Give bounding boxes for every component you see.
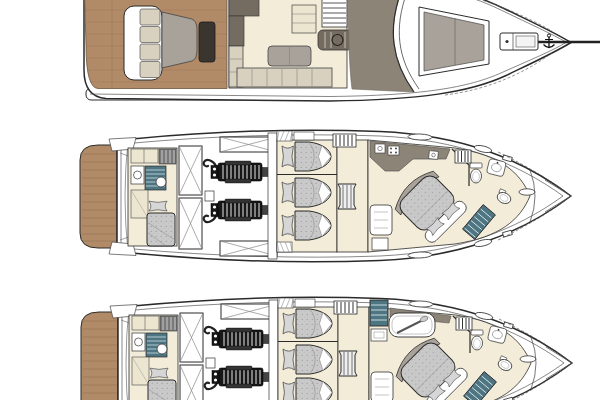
lower-deck-plan-a (80, 130, 571, 261)
salon-table (268, 46, 311, 66)
galley-appliance-icon (429, 151, 439, 160)
lower-deck-a-base (80, 130, 571, 261)
vanity-desk (371, 329, 387, 341)
cockpit-table (199, 22, 215, 62)
anchor-windlass (500, 33, 538, 50)
main-deck-plan (84, 0, 600, 101)
companionway-stairs (322, 0, 347, 27)
lower-deck-b-base (81, 297, 572, 400)
settee-backrest (162, 12, 197, 68)
lower-deck-plan-b (81, 297, 572, 400)
yacht-deck-plans (0, 0, 600, 400)
lounge-settee (389, 313, 435, 337)
salon-cabinet (292, 5, 316, 33)
stair-locker (370, 300, 388, 326)
helm-console (318, 30, 352, 50)
galley-sink-icon (375, 144, 385, 153)
galley-stove-icon (388, 146, 399, 155)
deck-plans-figure (0, 0, 600, 400)
curved-settee (124, 6, 162, 80)
